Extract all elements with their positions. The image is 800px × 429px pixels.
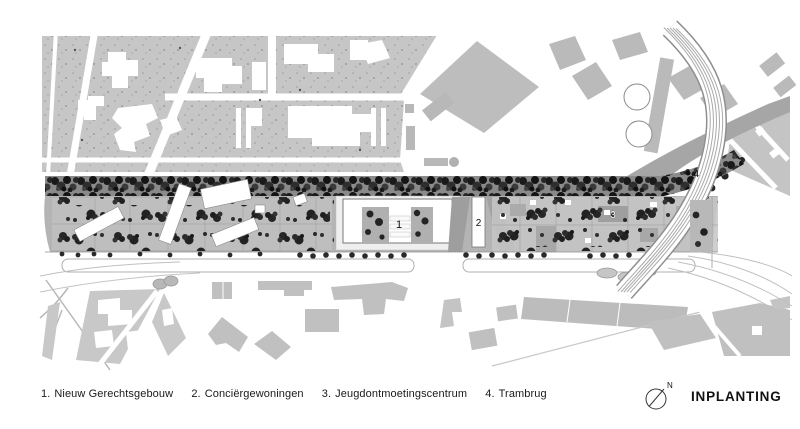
large-industrial-building bbox=[420, 41, 539, 133]
marker-2: 2 bbox=[476, 218, 482, 229]
legend-label: Jeugdontmoetingscentrum bbox=[335, 388, 467, 400]
legend-number: 4. bbox=[485, 388, 494, 400]
tree-cloud bbox=[153, 276, 178, 289]
courtyard bbox=[362, 207, 389, 243]
legend-item-3: 3.Jeugdontmoetingscentrum bbox=[322, 388, 467, 400]
legend-number: 1. bbox=[41, 388, 50, 400]
upper-city-blocks bbox=[42, 30, 443, 176]
page-title: INPLANTING bbox=[691, 389, 782, 404]
marker-3: 3 bbox=[610, 210, 616, 221]
north-label: N bbox=[667, 381, 673, 390]
legend-label: Trambrug bbox=[499, 388, 547, 400]
gas-holder-circle bbox=[626, 121, 652, 147]
street-tree-row bbox=[60, 252, 632, 259]
bridge-side-parcel bbox=[690, 200, 712, 252]
site-plan-drawing: 1 2 3 4 bbox=[0, 0, 800, 380]
freestanding-buildings bbox=[208, 281, 518, 360]
scanned-site-plan-page: 1 2 3 4 1.Nieuw Gerechtsgebouw 2.Conciër… bbox=[0, 0, 800, 429]
title-block: N INPLANTING bbox=[641, 378, 782, 414]
upper-right-district bbox=[405, 32, 796, 196]
legend-item-1: 1.Nieuw Gerechtsgebouw bbox=[41, 388, 173, 400]
marker-4: 4 bbox=[693, 169, 699, 180]
legend-number: 3. bbox=[322, 388, 331, 400]
legend-label: Nieuw Gerechtsgebouw bbox=[54, 388, 173, 400]
legend-item-2: 2.Conciërgewoningen bbox=[191, 388, 303, 400]
legend-number: 2. bbox=[191, 388, 200, 400]
north-compass-icon: N bbox=[641, 378, 681, 414]
marker-1: 1 bbox=[396, 219, 402, 231]
legend-item-4: 4.Trambrug bbox=[485, 388, 546, 400]
legend-label: Conciërgewoningen bbox=[205, 388, 304, 400]
legend: 1.Nieuw Gerechtsgebouw 2.Conciërgewoning… bbox=[41, 388, 562, 400]
lower-city-blocks bbox=[40, 252, 792, 370]
gas-holder-circle bbox=[624, 84, 650, 110]
